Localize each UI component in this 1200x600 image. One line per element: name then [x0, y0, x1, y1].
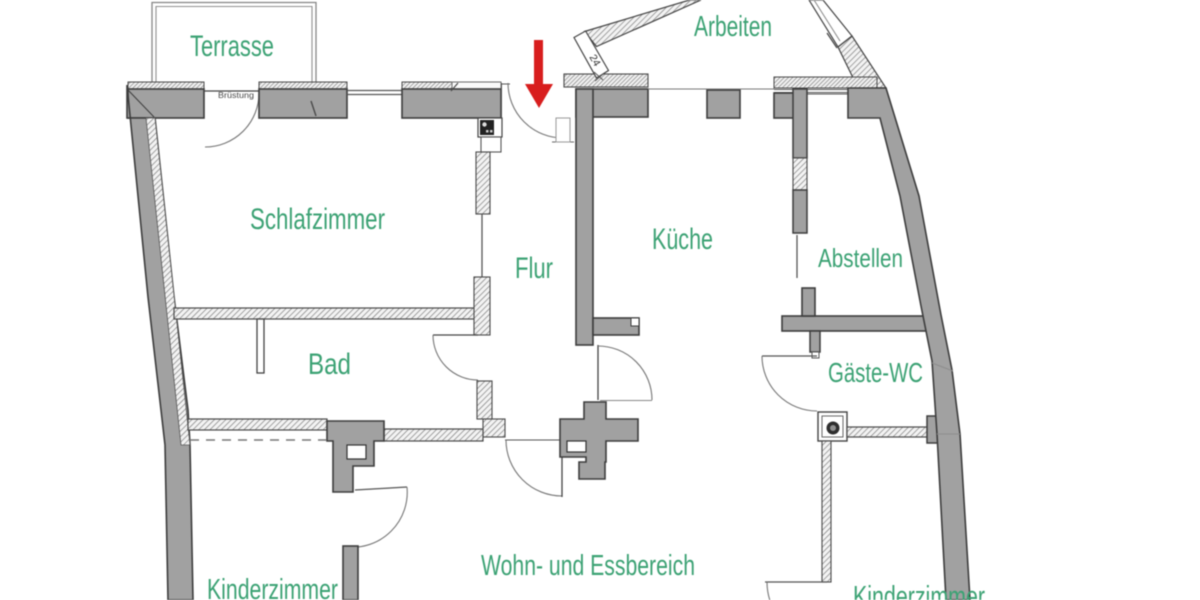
svg-text:Wohn- und Essbereich: Wohn- und Essbereich — [481, 550, 695, 582]
svg-text:Brüstung: Brüstung — [218, 91, 254, 100]
svg-text:Gäste-WC: Gäste-WC — [828, 357, 923, 388]
svg-text:Küche: Küche — [652, 223, 713, 256]
svg-text:Bad: Bad — [308, 348, 351, 381]
svg-text:Kinderzimmer: Kinderzimmer — [853, 581, 985, 600]
svg-text:Flur: Flur — [515, 252, 553, 285]
svg-text:Abstellen: Abstellen — [818, 243, 903, 273]
svg-text:Terrasse: Terrasse — [190, 30, 274, 63]
svg-text:Schlafzimmer: Schlafzimmer — [250, 203, 385, 236]
svg-text:Kinderzimmer: Kinderzimmer — [207, 574, 338, 600]
svg-text:Arbeiten: Arbeiten — [694, 11, 772, 43]
